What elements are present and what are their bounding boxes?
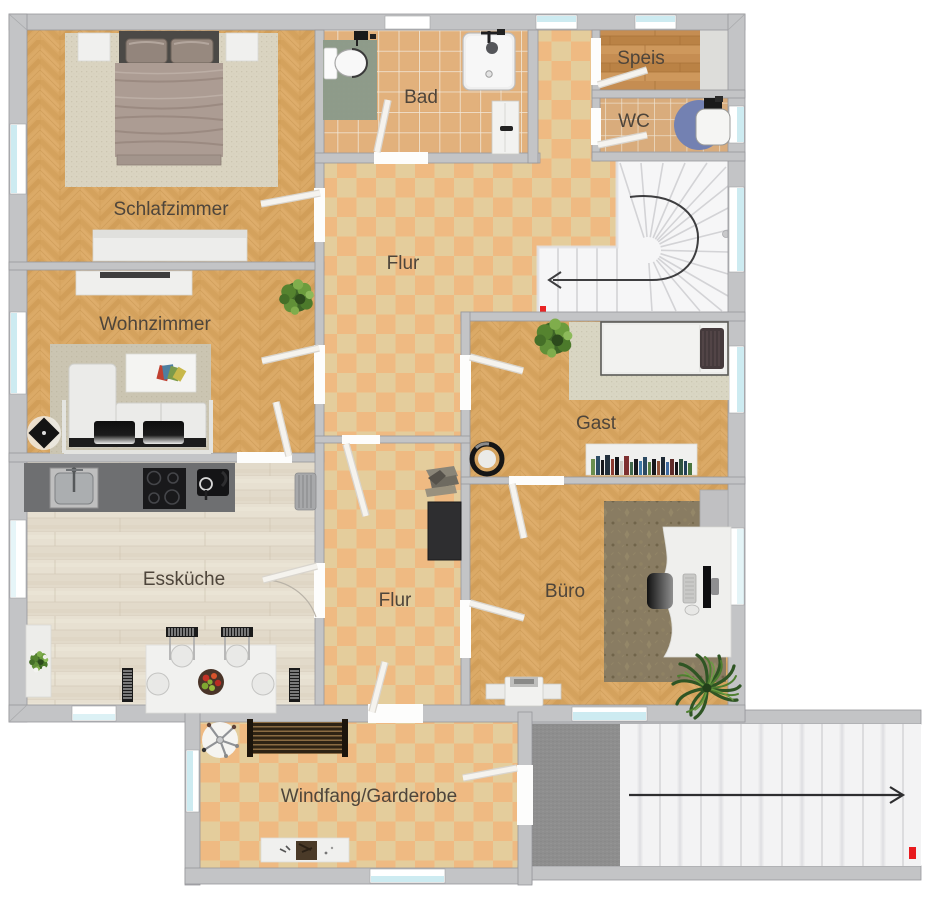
- svg-text:Speis: Speis: [617, 48, 665, 69]
- svg-text:Flur: Flur: [379, 590, 412, 611]
- svg-text:Gast: Gast: [576, 413, 617, 434]
- svg-text:Flur: Flur: [387, 253, 420, 274]
- svg-text:WC: WC: [618, 111, 650, 132]
- svg-text:Bad: Bad: [404, 87, 438, 108]
- svg-text:Windfang/Garderobe: Windfang/Garderobe: [281, 786, 457, 807]
- svg-text:Essküche: Essküche: [143, 569, 225, 590]
- svg-text:Schlafzimmer: Schlafzimmer: [113, 199, 229, 220]
- svg-text:Wohnzimmer: Wohnzimmer: [99, 314, 211, 335]
- svg-text:Büro: Büro: [545, 581, 585, 602]
